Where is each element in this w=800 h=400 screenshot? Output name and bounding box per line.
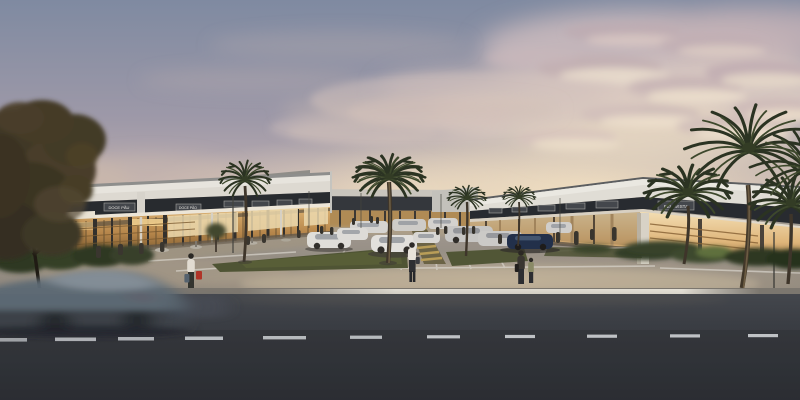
svg-text:DOCE PÃO: DOCE PÃO xyxy=(179,205,197,210)
svg-text:DOCE PÃU: DOCE PÃU xyxy=(109,205,130,210)
